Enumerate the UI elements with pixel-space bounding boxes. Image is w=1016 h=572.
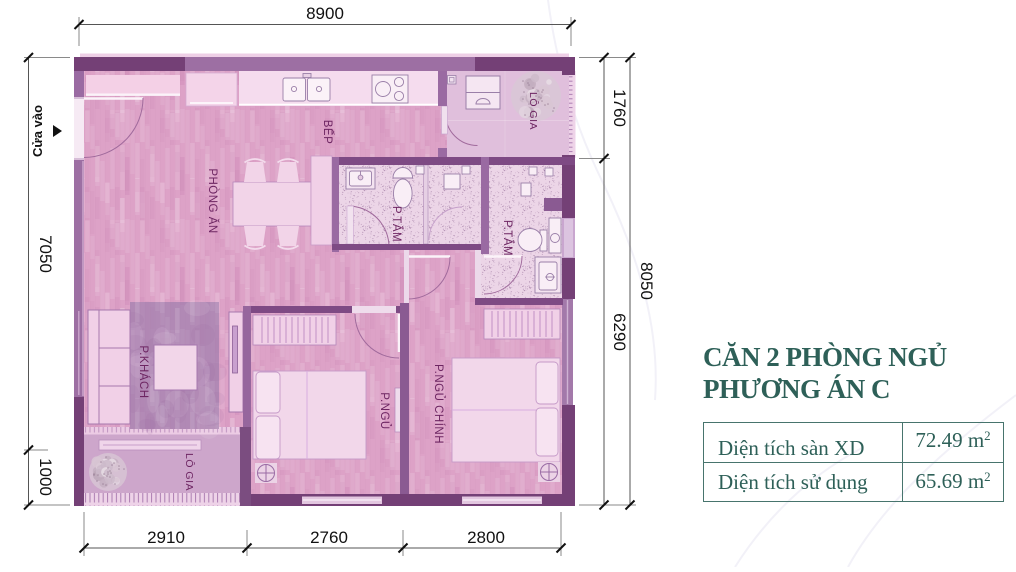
- svg-text:P.TẮM: P.TẮM: [501, 220, 514, 256]
- svg-text:1760: 1760: [610, 89, 629, 127]
- svg-text:6290: 6290: [610, 313, 629, 351]
- svg-text:LÔ GIA: LÔ GIA: [183, 453, 196, 491]
- svg-text:P.KHÁCH: P.KHÁCH: [137, 345, 150, 398]
- svg-text:LÔ GIA: LÔ GIA: [527, 92, 540, 130]
- svg-text:BẾP: BẾP: [321, 120, 334, 145]
- svg-text:8050: 8050: [637, 262, 656, 300]
- svg-text:1000: 1000: [36, 458, 55, 496]
- svg-text:2760: 2760: [310, 528, 348, 547]
- svg-text:2800: 2800: [467, 528, 505, 547]
- svg-text:8900: 8900: [306, 4, 344, 23]
- svg-text:7050: 7050: [36, 235, 55, 273]
- svg-text:PHÒNG ĂN: PHÒNG ĂN: [206, 168, 219, 233]
- svg-text:2910: 2910: [147, 528, 185, 547]
- svg-text:P.NGỦ CHÍNH: P.NGỦ CHÍNH: [432, 364, 445, 444]
- svg-text:Cửa vào: Cửa vào: [30, 105, 45, 157]
- svg-text:P.NGỦ: P.NGỦ: [378, 392, 391, 429]
- svg-text:P.TẮM: P.TẮM: [390, 206, 403, 242]
